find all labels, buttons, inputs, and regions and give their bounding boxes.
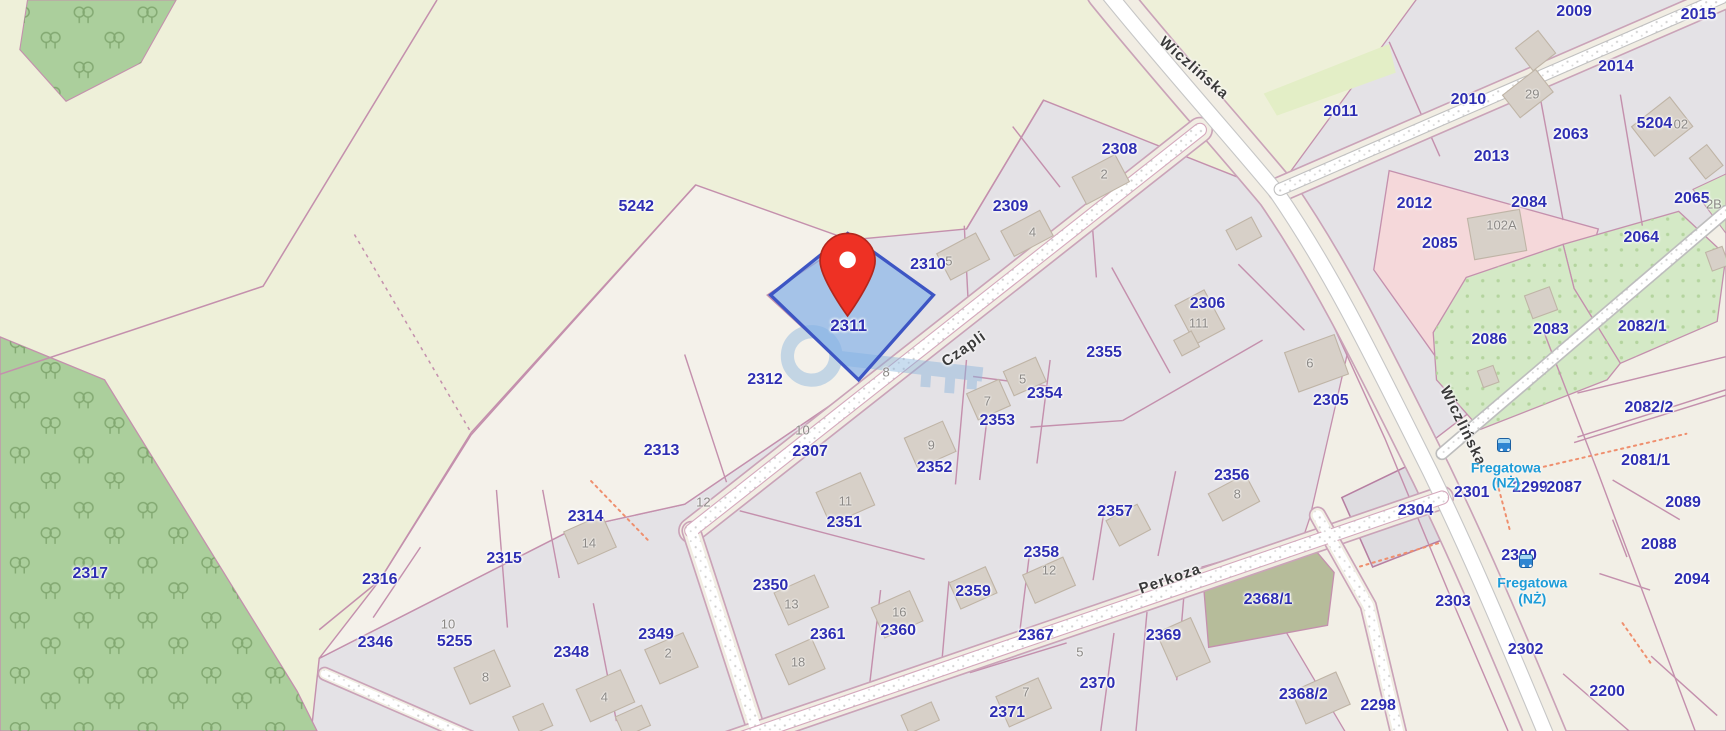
- parcel-label-2298: 2298: [1360, 697, 1396, 715]
- house-number: 9: [928, 437, 935, 452]
- house-number: 12: [696, 495, 710, 510]
- house-number: 7: [1022, 685, 1029, 700]
- house-number: 16: [892, 605, 906, 620]
- bus-stop-icon[interactable]: [1497, 438, 1511, 452]
- house-number: 5: [1019, 371, 1026, 386]
- house-number: 02: [1674, 117, 1688, 132]
- parcel-label-2083: 2083: [1533, 321, 1569, 339]
- parcel-label-2308: 2308: [1102, 141, 1138, 159]
- parcel-label-2081/1: 2081/1: [1621, 452, 1670, 470]
- parcel-label-2012: 2012: [1397, 195, 1433, 213]
- parcel-label-2309: 2309: [993, 198, 1029, 216]
- highlighted-parcel-label: 2311: [830, 316, 867, 336]
- house-number: 2: [665, 645, 672, 660]
- parcel-label-2010: 2010: [1451, 91, 1487, 109]
- parcel-label-5242: 5242: [618, 198, 654, 216]
- parcel-label-2014: 2014: [1598, 58, 1634, 76]
- parcel-label-2360: 2360: [880, 622, 916, 640]
- parcel-label-2313: 2313: [644, 442, 680, 460]
- label-layer: 2311 52422312231323072310230823092011201…: [0, 0, 1726, 731]
- parcel-label-2087: 2087: [1546, 479, 1582, 497]
- house-number: 29: [1525, 86, 1539, 101]
- parcel-label-2317: 2317: [72, 565, 108, 583]
- bus-stop-icon[interactable]: [1519, 554, 1533, 568]
- parcel-label-2371: 2371: [989, 704, 1025, 722]
- parcel-label-2312: 2312: [747, 371, 783, 389]
- parcel-label-2082/1: 2082/1: [1618, 318, 1667, 336]
- house-number: 102A: [1486, 217, 1516, 232]
- parcel-label-2368/1: 2368/1: [1244, 591, 1293, 609]
- parcel-label-2346: 2346: [358, 634, 394, 652]
- parcel-label-2367: 2367: [1018, 627, 1054, 645]
- parcel-label-2348: 2348: [554, 644, 590, 662]
- parcel-label-2065: 2065: [1674, 190, 1710, 208]
- parcel-label-5255: 5255: [437, 633, 473, 651]
- parcel-label-2310: 2310: [910, 256, 946, 274]
- parcel-label-2355: 2355: [1086, 344, 1122, 362]
- parcel-label-2306: 2306: [1190, 295, 1226, 313]
- house-number: 18: [791, 654, 805, 669]
- parcel-label-2370: 2370: [1080, 675, 1116, 693]
- house-number: 10: [441, 617, 455, 632]
- parcel-label-2086: 2086: [1472, 331, 1508, 349]
- house-number: 5: [945, 253, 952, 268]
- parcel-label-2011: 2011: [1323, 103, 1358, 121]
- street-label: Czapli: [939, 328, 990, 371]
- parcel-label-2307: 2307: [792, 443, 828, 461]
- house-number: 6: [1306, 356, 1313, 371]
- parcel-label-2094: 2094: [1674, 571, 1710, 589]
- parcel-label-2200: 2200: [1589, 683, 1625, 701]
- parcel-label-2356: 2356: [1214, 467, 1250, 485]
- parcel-label-5204: 5204: [1637, 115, 1673, 133]
- house-number: 8: [1234, 487, 1241, 502]
- parcel-label-2302: 2302: [1508, 641, 1544, 659]
- parcel-label-2301: 2301: [1454, 484, 1490, 502]
- house-number: 8: [482, 670, 489, 685]
- parcel-label-2009: 2009: [1556, 3, 1592, 21]
- parcel-label-2084: 2084: [1511, 194, 1547, 212]
- parcel-label-2064: 2064: [1623, 229, 1659, 247]
- house-number: 8: [882, 365, 889, 380]
- house-number: 4: [601, 689, 608, 704]
- parcel-label-2349: 2349: [638, 626, 674, 644]
- parcel-label-2085: 2085: [1422, 235, 1458, 253]
- house-number: 14: [582, 535, 596, 550]
- parcel-label-2359: 2359: [955, 583, 991, 601]
- house-number: 2: [1100, 166, 1107, 181]
- parcel-label-2015: 2015: [1681, 6, 1717, 24]
- parcel-label-2063: 2063: [1553, 126, 1589, 144]
- parcel-label-2353: 2353: [979, 412, 1015, 430]
- bus-stop-label: Fregatowa(NŻ): [1497, 576, 1567, 607]
- house-number: 4: [1029, 225, 1036, 240]
- house-number: 7: [984, 393, 991, 408]
- street-label: Wiczlińska: [1156, 33, 1232, 103]
- parcel-label-2357: 2357: [1097, 503, 1133, 521]
- street-label: Wiczlińska: [1436, 383, 1489, 468]
- parcel-label-2316: 2316: [362, 571, 398, 589]
- house-number: 5: [1076, 644, 1083, 659]
- parcel-label-2299: 2299: [1512, 479, 1548, 497]
- house-number: 111: [1189, 315, 1209, 330]
- house-number: 11: [839, 493, 853, 508]
- parcel-label-2351: 2351: [826, 514, 862, 532]
- bus-stop-label: Fregatowa(NŻ): [1471, 460, 1541, 491]
- parcel-label-2314: 2314: [568, 508, 604, 526]
- parcel-label-2303: 2303: [1435, 593, 1471, 611]
- parcel-label-2305: 2305: [1313, 392, 1349, 410]
- house-number: 12: [1042, 563, 1056, 578]
- parcel-label-2088: 2088: [1641, 536, 1677, 554]
- street-label: Perkoza: [1137, 561, 1204, 598]
- parcel-label-2013: 2013: [1474, 148, 1510, 166]
- house-number: 13: [784, 597, 798, 612]
- map-canvas[interactable]: 2311 52422312231323072310230823092011201…: [0, 0, 1726, 731]
- parcel-label-2368/2: 2368/2: [1279, 686, 1328, 704]
- parcel-label-2350: 2350: [753, 577, 789, 595]
- parcel-label-2352: 2352: [917, 459, 953, 477]
- parcel-label-2315: 2315: [486, 550, 522, 568]
- parcel-label-2361: 2361: [810, 626, 846, 644]
- parcel-label-2354: 2354: [1027, 385, 1063, 403]
- house-number: 2B: [1706, 196, 1722, 211]
- parcel-label-2358: 2358: [1024, 544, 1060, 562]
- parcel-label-2369: 2369: [1146, 627, 1182, 645]
- parcel-label-2089: 2089: [1665, 494, 1701, 512]
- parcel-label-2304: 2304: [1398, 502, 1434, 520]
- house-number: 10: [795, 423, 809, 438]
- parcel-label-2082/2: 2082/2: [1624, 399, 1673, 417]
